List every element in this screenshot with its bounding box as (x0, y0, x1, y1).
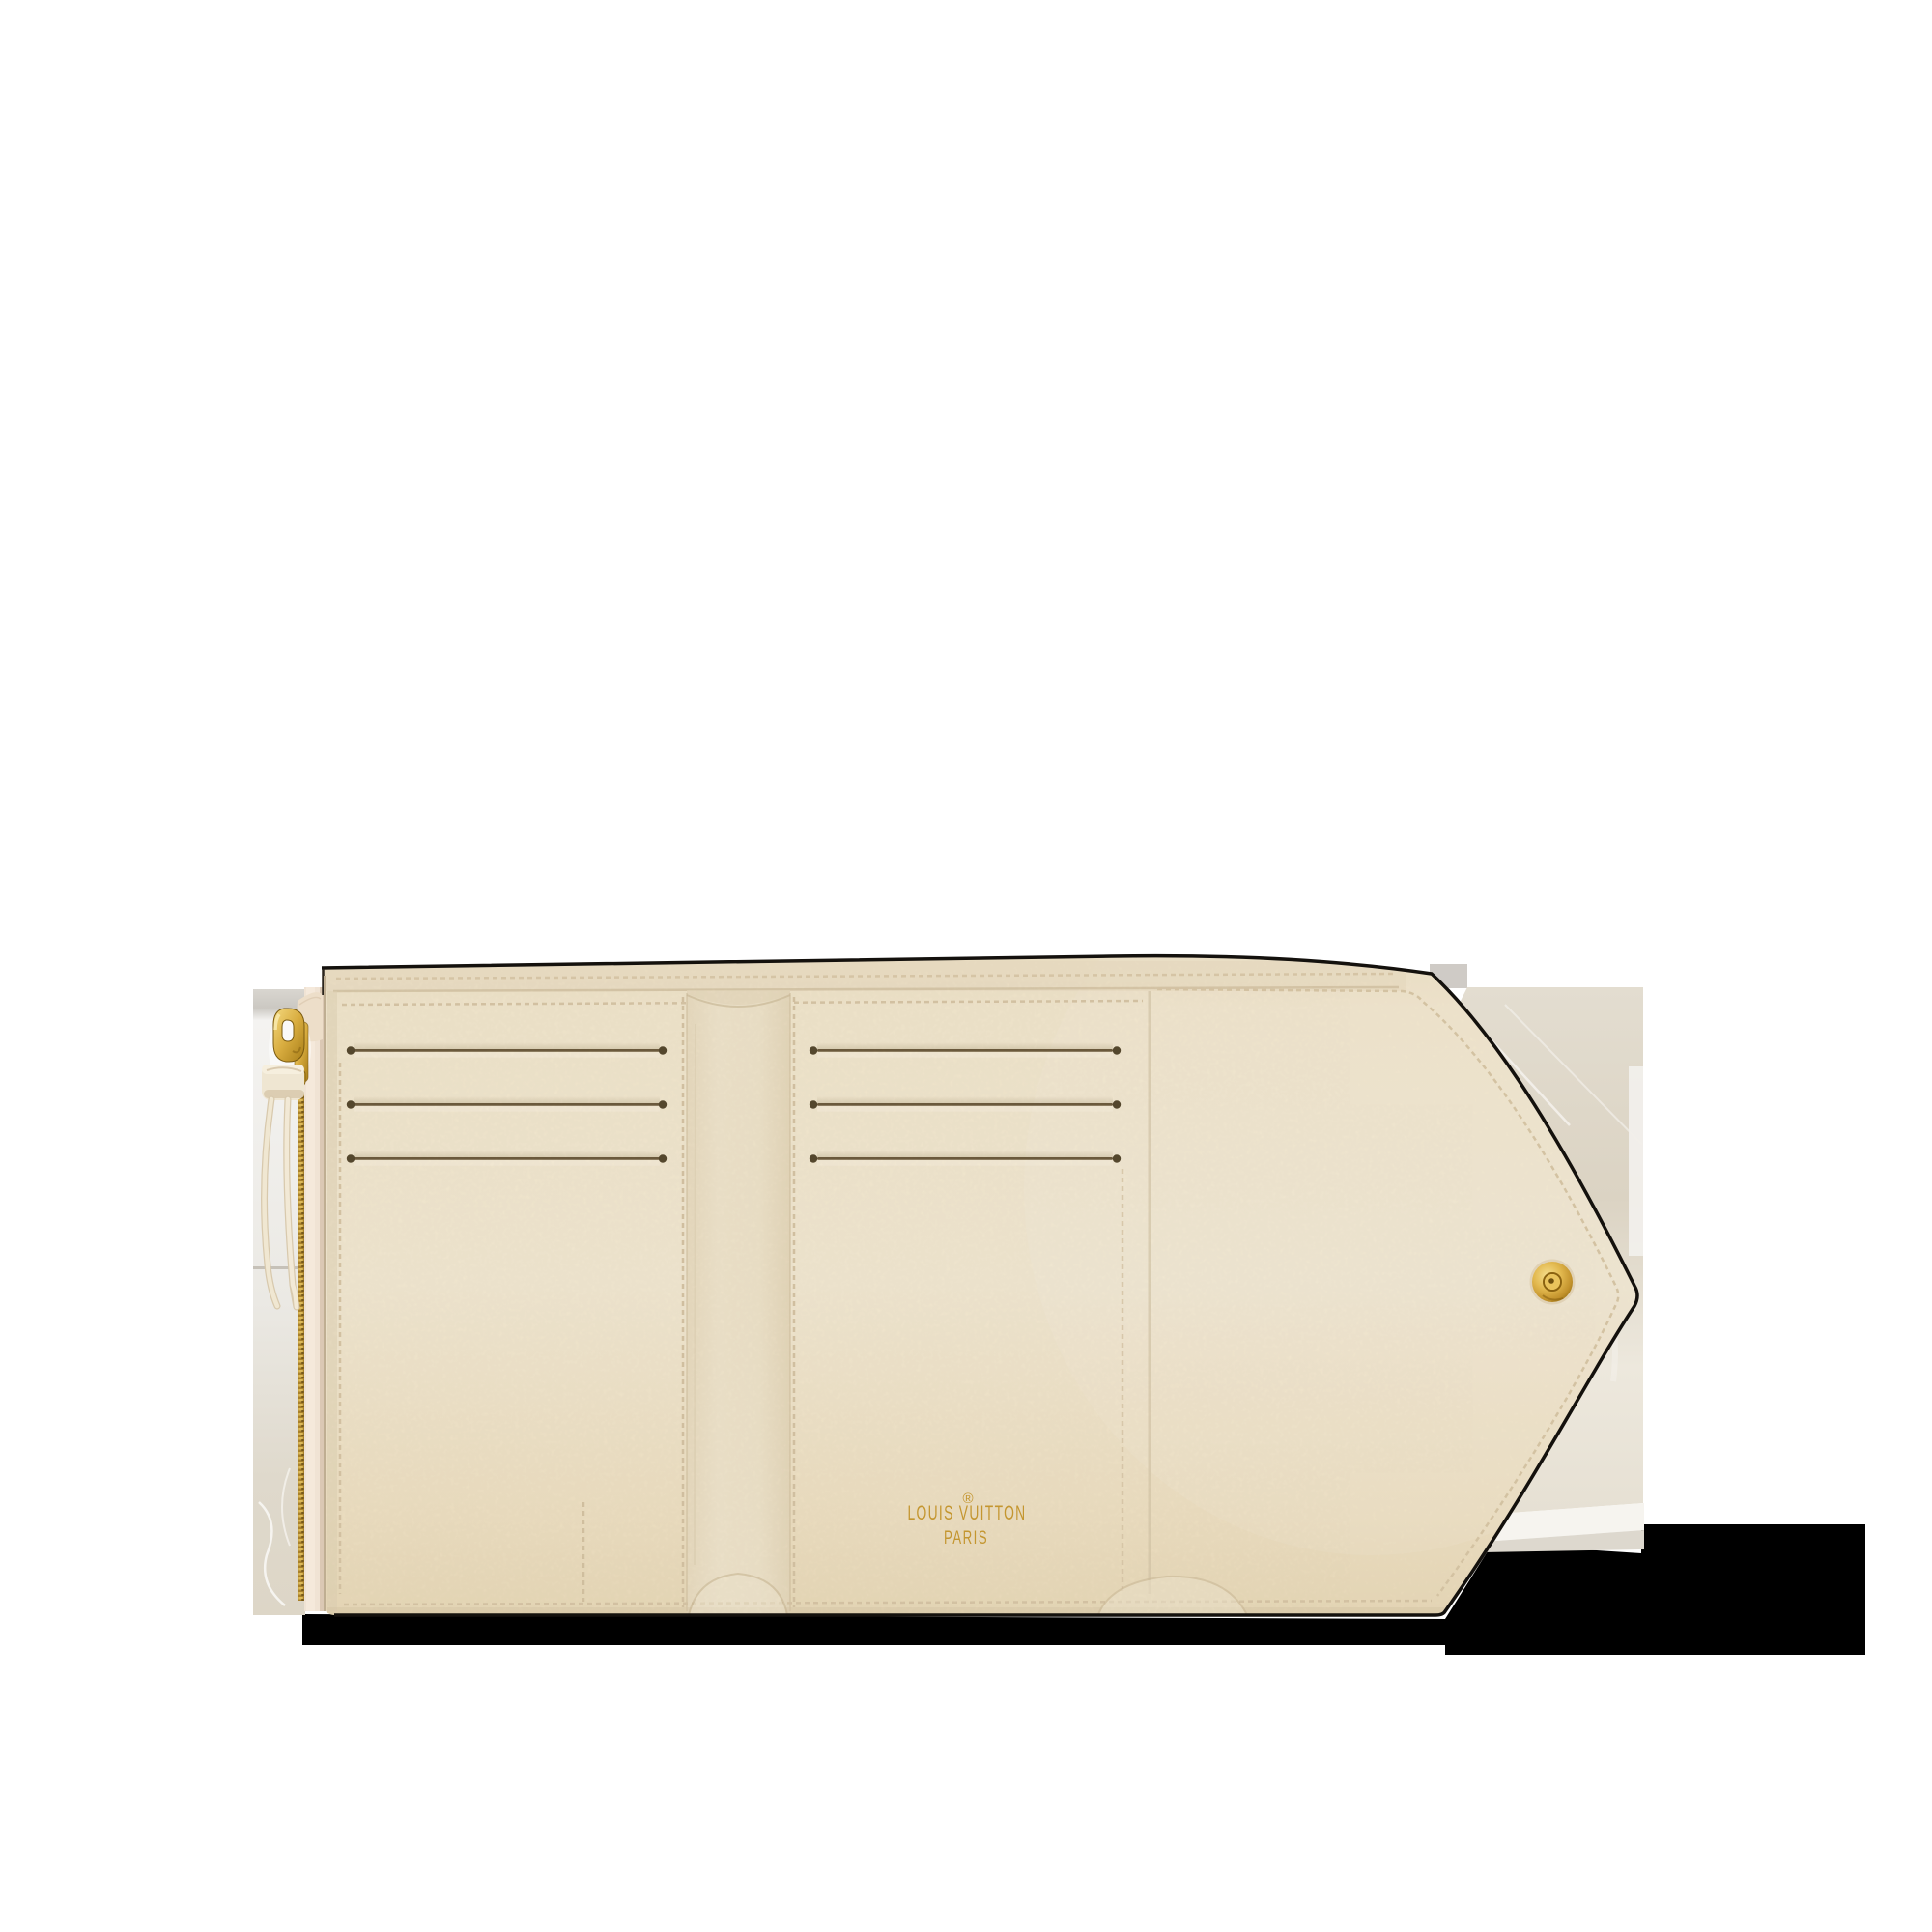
svg-text:LOUIS VUITTON: LOUIS VUITTON (908, 1502, 1027, 1524)
svg-text:PARIS: PARIS (944, 1528, 988, 1548)
